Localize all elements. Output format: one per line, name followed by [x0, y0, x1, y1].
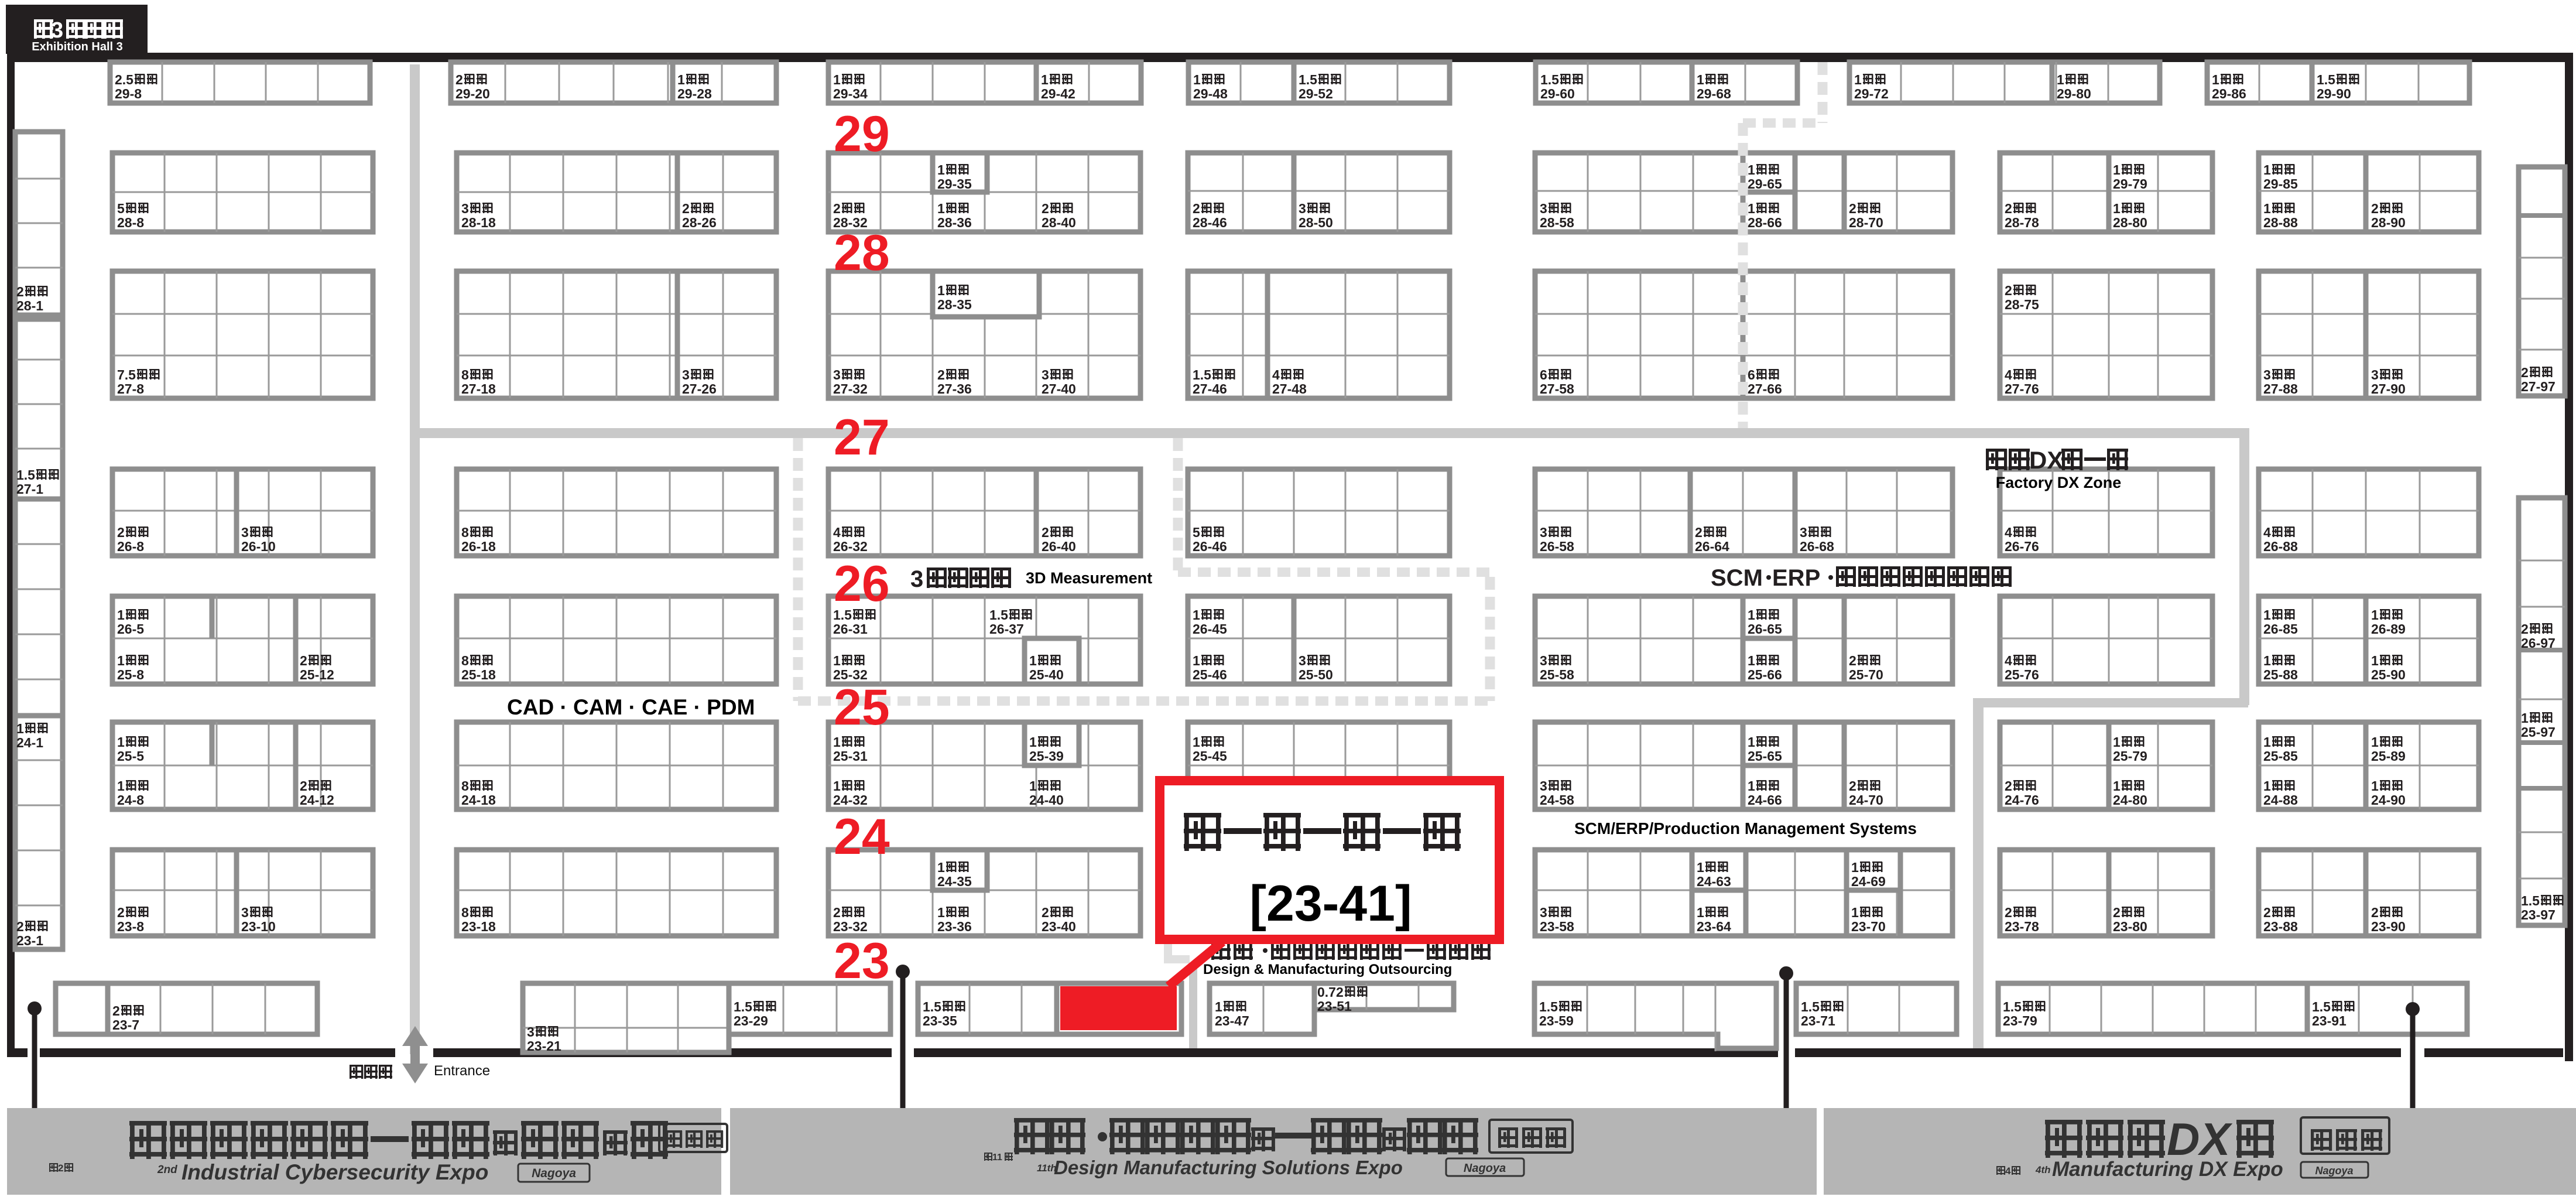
svg-text:2: 2 [1042, 905, 1049, 920]
svg-text:26-10: 26-10 [241, 539, 276, 554]
svg-text:1: 1 [117, 778, 125, 794]
svg-text:1: 1 [2371, 734, 2379, 750]
svg-text:1: 1 [1854, 72, 1862, 87]
svg-text:2: 2 [1849, 778, 1856, 794]
svg-text:1: 1 [833, 72, 841, 87]
svg-text:2: 2 [16, 284, 24, 299]
svg-text:1: 1 [937, 162, 945, 177]
svg-text:29-52: 29-52 [1299, 86, 1333, 101]
svg-text:2: 2 [117, 905, 125, 920]
svg-text:1: 1 [1748, 778, 1755, 794]
svg-text:26-88: 26-88 [2263, 539, 2298, 554]
svg-text:ERP: ERP [1772, 565, 1820, 591]
svg-text:1: 1 [1029, 778, 1037, 794]
svg-text:4: 4 [2263, 525, 2271, 540]
svg-text:25-88: 25-88 [2263, 667, 2298, 682]
svg-text:3: 3 [2263, 367, 2271, 382]
svg-text:Nagoya: Nagoya [2315, 1165, 2353, 1177]
svg-text:2: 2 [833, 201, 841, 216]
svg-text:1: 1 [2263, 778, 2271, 794]
svg-text:Factory DX Zone: Factory DX Zone [1996, 474, 2122, 491]
svg-text:1.5: 1.5 [2003, 999, 2022, 1014]
svg-text:29-8: 29-8 [115, 86, 142, 101]
svg-text:3: 3 [2371, 367, 2379, 382]
svg-text:23-47: 23-47 [1215, 1013, 1249, 1028]
svg-text:25-5: 25-5 [117, 748, 144, 764]
svg-text:26-58: 26-58 [1540, 539, 1574, 554]
svg-text:23-71: 23-71 [1801, 1013, 1835, 1028]
svg-text:2: 2 [1849, 201, 1856, 216]
svg-text:24-35: 24-35 [937, 874, 972, 889]
svg-text:1: 1 [1193, 734, 1200, 750]
svg-text:28-66: 28-66 [1748, 215, 1782, 230]
svg-text:25-66: 25-66 [1748, 667, 1782, 682]
svg-text:1: 1 [1748, 734, 1755, 750]
svg-text:1: 1 [2212, 72, 2219, 87]
svg-text:4th: 4th [2035, 1164, 2051, 1175]
svg-text:1: 1 [2371, 778, 2379, 794]
svg-text:29-35: 29-35 [937, 176, 972, 192]
svg-text:4: 4 [2005, 653, 2012, 668]
svg-text:3: 3 [1540, 653, 1547, 668]
svg-text:25-97: 25-97 [2521, 724, 2556, 740]
svg-text:2: 2 [2113, 905, 2121, 920]
svg-text:1.5: 1.5 [2312, 999, 2331, 1014]
svg-text:1: 1 [2371, 607, 2379, 623]
svg-text:1: 1 [1748, 607, 1755, 623]
svg-text:1: 1 [2113, 162, 2121, 177]
svg-text:25-8: 25-8 [117, 667, 144, 682]
svg-text:2: 2 [300, 653, 307, 668]
svg-text:4: 4 [2005, 367, 2012, 382]
svg-text:27-66: 27-66 [1748, 381, 1782, 396]
svg-text:Design Manufacturing Solutions: Design Manufacturing Solutions Expo [1054, 1157, 1403, 1178]
svg-text:24-69: 24-69 [1851, 874, 1886, 889]
svg-text:4: 4 [1272, 367, 1280, 382]
svg-text:26-31: 26-31 [833, 621, 868, 637]
svg-text:23-59: 23-59 [1539, 1013, 1574, 1028]
svg-text:1: 1 [16, 721, 24, 736]
svg-text:26-68: 26-68 [1800, 539, 1834, 554]
svg-text:3: 3 [241, 525, 249, 540]
svg-text:26-8: 26-8 [117, 539, 144, 554]
svg-text:25-39: 25-39 [1029, 748, 1064, 764]
svg-text:29-28: 29-28 [677, 86, 712, 101]
svg-text:27-8: 27-8 [117, 381, 144, 396]
svg-text:24: 24 [834, 809, 890, 865]
svg-text:23-32: 23-32 [833, 919, 868, 934]
svg-text:1: 1 [1193, 607, 1200, 623]
svg-text:1: 1 [1851, 905, 1859, 920]
svg-text:26: 26 [834, 556, 890, 612]
svg-text:1: 1 [1215, 999, 1222, 1014]
svg-text:27-88: 27-88 [2263, 381, 2298, 396]
svg-text:Exhibition Hall 3: Exhibition Hall 3 [32, 40, 123, 53]
svg-text:1.5: 1.5 [2317, 72, 2335, 87]
svg-text:28-8: 28-8 [117, 215, 144, 230]
svg-text:Entrance: Entrance [434, 1063, 490, 1079]
svg-text:1: 1 [2057, 72, 2064, 87]
svg-text:29: 29 [834, 106, 890, 162]
svg-text:26-32: 26-32 [833, 539, 868, 554]
svg-text:2: 2 [112, 1003, 120, 1018]
svg-text:26-76: 26-76 [2005, 539, 2039, 554]
svg-text:23-88: 23-88 [2263, 919, 2298, 934]
svg-text:29-42: 29-42 [1041, 86, 1075, 101]
svg-text:2: 2 [2005, 283, 2012, 298]
svg-text:1: 1 [117, 607, 125, 623]
svg-text:24-40: 24-40 [1029, 792, 1064, 808]
svg-text:1: 1 [1193, 72, 1201, 87]
svg-text:DX: DX [2029, 446, 2063, 474]
svg-text:23-18: 23-18 [461, 919, 496, 934]
svg-text:3: 3 [1800, 525, 1807, 540]
svg-text:1: 1 [1193, 653, 1200, 668]
svg-text:[23-41]: [23-41] [1249, 876, 1412, 932]
svg-text:SCM/ERP/Production Management: SCM/ERP/Production Management Systems [1574, 819, 1917, 837]
svg-text:28-35: 28-35 [937, 297, 972, 312]
svg-text:28-36: 28-36 [937, 215, 972, 230]
svg-text:26-97: 26-97 [2521, 635, 2556, 651]
svg-text:23-97: 23-97 [2521, 907, 2556, 922]
svg-text:1: 1 [2521, 710, 2529, 726]
svg-text:23-90: 23-90 [2371, 919, 2406, 934]
svg-text:1: 1 [833, 778, 841, 794]
svg-text:23-36: 23-36 [937, 919, 972, 934]
svg-text:27-46: 27-46 [1193, 381, 1227, 396]
svg-text:8: 8 [461, 653, 469, 668]
svg-text:27: 27 [834, 409, 890, 466]
svg-text:2: 2 [1193, 201, 1200, 216]
svg-text:26-45: 26-45 [1193, 621, 1227, 637]
svg-text:23-21: 23-21 [527, 1038, 561, 1054]
svg-text:3: 3 [461, 201, 469, 216]
svg-text:1: 1 [1697, 860, 1704, 875]
svg-text:7.5: 7.5 [117, 367, 136, 382]
svg-text:28-46: 28-46 [1193, 215, 1227, 230]
svg-text:26-37: 26-37 [989, 621, 1024, 637]
svg-text:Nagoya: Nagoya [532, 1167, 576, 1180]
svg-text:23-70: 23-70 [1851, 919, 1886, 934]
svg-text:3: 3 [1540, 201, 1547, 216]
svg-text:28: 28 [834, 225, 890, 281]
svg-text:8: 8 [461, 778, 469, 794]
svg-text:1: 1 [2263, 734, 2271, 750]
svg-text:1: 1 [1748, 162, 1755, 177]
svg-text:24-66: 24-66 [1748, 792, 1782, 808]
svg-text:23-35: 23-35 [923, 1013, 957, 1028]
svg-text:29-86: 29-86 [2212, 86, 2246, 101]
svg-text:28-88: 28-88 [2263, 215, 2298, 230]
svg-text:23: 23 [834, 933, 890, 989]
svg-text:24-32: 24-32 [833, 792, 868, 808]
svg-text:27-76: 27-76 [2005, 381, 2039, 396]
svg-text:1: 1 [1748, 653, 1755, 668]
svg-text:25-85: 25-85 [2263, 748, 2298, 764]
svg-text:26-64: 26-64 [1695, 539, 1729, 554]
svg-text:23-58: 23-58 [1540, 919, 1574, 934]
svg-text:6: 6 [1748, 367, 1755, 382]
svg-text:11: 11 [992, 1153, 1002, 1163]
svg-text:CAD · CAM · CAE · PDM: CAD · CAM · CAE · PDM [507, 695, 755, 719]
svg-text:3D Measurement: 3D Measurement [1026, 569, 1152, 587]
svg-text:1: 1 [677, 72, 685, 87]
svg-text:1.5: 1.5 [1801, 999, 1820, 1014]
svg-text:1: 1 [117, 734, 125, 750]
svg-text:1: 1 [1029, 653, 1037, 668]
svg-text:1: 1 [2263, 607, 2271, 623]
svg-text:1.5: 1.5 [1193, 367, 1211, 382]
svg-text:23-7: 23-7 [112, 1017, 139, 1033]
svg-text:27-58: 27-58 [1540, 381, 1574, 396]
svg-text:2: 2 [2005, 778, 2012, 794]
svg-text:27-1: 27-1 [16, 481, 43, 497]
svg-text:1.5: 1.5 [1539, 999, 1558, 1014]
svg-text:28-40: 28-40 [1042, 215, 1076, 230]
svg-text:27-36: 27-36 [937, 381, 972, 396]
svg-text:23-1: 23-1 [16, 933, 43, 948]
svg-text:1: 1 [117, 653, 125, 668]
svg-text:26-5: 26-5 [117, 621, 144, 637]
svg-text:24-12: 24-12 [300, 792, 334, 808]
svg-text:23-80: 23-80 [2113, 919, 2147, 934]
svg-text:28-70: 28-70 [1849, 215, 1883, 230]
svg-text:23-91: 23-91 [2312, 1013, 2347, 1028]
svg-text:26-18: 26-18 [461, 539, 496, 554]
svg-text:25-79: 25-79 [2113, 748, 2147, 764]
svg-text:1: 1 [2371, 653, 2379, 668]
svg-text:25-31: 25-31 [833, 748, 868, 764]
svg-text:1: 1 [2113, 201, 2121, 216]
svg-text:2: 2 [2005, 905, 2012, 920]
svg-text:1: 1 [1697, 905, 1704, 920]
svg-text:25: 25 [834, 679, 890, 736]
svg-text:23-64: 23-64 [1697, 919, 1731, 934]
svg-text:2: 2 [2521, 621, 2529, 637]
svg-text:24-90: 24-90 [2371, 792, 2406, 808]
svg-text:4: 4 [2005, 525, 2012, 540]
svg-text:1: 1 [937, 860, 945, 875]
svg-text:1.5: 1.5 [1299, 72, 1317, 87]
svg-text:26-40: 26-40 [1042, 539, 1076, 554]
svg-text:1: 1 [2263, 201, 2271, 216]
svg-text:2: 2 [1849, 653, 1856, 668]
svg-text:29-20: 29-20 [455, 86, 490, 101]
svg-text:Manufacturing DX Expo: Manufacturing DX Expo [2052, 1158, 2283, 1181]
svg-text:1: 1 [833, 653, 841, 668]
svg-text:26-89: 26-89 [2371, 621, 2406, 637]
svg-text:1: 1 [2263, 162, 2271, 177]
svg-text:1: 1 [1029, 734, 1037, 750]
svg-text:3: 3 [527, 1024, 535, 1040]
svg-text:23-8: 23-8 [117, 919, 144, 934]
svg-text:5: 5 [117, 201, 125, 216]
svg-text:1.5: 1.5 [16, 467, 35, 483]
svg-text:28-80: 28-80 [2113, 215, 2147, 230]
svg-text:Design & Manufacturing Outsour: Design & Manufacturing Outsourcing [1203, 962, 1452, 977]
svg-text:8: 8 [461, 367, 469, 382]
svg-text:2: 2 [16, 919, 24, 934]
svg-text:25-18: 25-18 [461, 667, 496, 682]
svg-text:2: 2 [682, 201, 690, 216]
svg-text:2: 2 [1042, 525, 1049, 540]
svg-text:2: 2 [455, 72, 463, 87]
svg-text:29-90: 29-90 [2317, 86, 2351, 101]
svg-text:23-78: 23-78 [2005, 919, 2039, 934]
svg-text:DX: DX [2167, 1113, 2232, 1165]
svg-text:28-26: 28-26 [682, 215, 717, 230]
svg-text:26-85: 26-85 [2263, 621, 2298, 637]
svg-text:5: 5 [1193, 525, 1200, 540]
svg-text:24-8: 24-8 [117, 792, 144, 808]
svg-text:28-58: 28-58 [1540, 215, 1574, 230]
svg-text:1: 1 [2113, 734, 2121, 750]
svg-text:8: 8 [461, 905, 469, 920]
svg-text:24-76: 24-76 [2005, 792, 2039, 808]
svg-text:2.5: 2.5 [115, 72, 133, 87]
svg-text:2: 2 [2371, 201, 2379, 216]
svg-text:4: 4 [2005, 1165, 2011, 1177]
svg-text:29-72: 29-72 [1854, 86, 1889, 101]
svg-text:2: 2 [2263, 905, 2271, 920]
svg-text:27-26: 27-26 [682, 381, 717, 396]
svg-text:27-32: 27-32 [833, 381, 868, 396]
svg-text:26-46: 26-46 [1193, 539, 1227, 554]
svg-text:2nd: 2nd [157, 1164, 177, 1176]
svg-text:27-40: 27-40 [1042, 381, 1076, 396]
svg-text:25-76: 25-76 [2005, 667, 2039, 682]
svg-text:25-70: 25-70 [1849, 667, 1883, 682]
svg-text:25-50: 25-50 [1299, 667, 1333, 682]
svg-text:24-1: 24-1 [16, 735, 43, 750]
svg-text:4: 4 [833, 525, 841, 540]
svg-text:2: 2 [117, 525, 125, 540]
svg-text:2: 2 [1042, 201, 1049, 216]
svg-text:Industrial Cybersecurity Expo: Industrial Cybersecurity Expo [181, 1160, 488, 1184]
svg-text:24-80: 24-80 [2113, 792, 2147, 808]
svg-text:2: 2 [937, 367, 945, 382]
svg-text:3: 3 [833, 367, 841, 382]
svg-text:24-88: 24-88 [2263, 792, 2298, 808]
svg-text:2: 2 [300, 778, 307, 794]
svg-text:3: 3 [682, 367, 690, 382]
svg-text:1: 1 [1697, 72, 1704, 87]
svg-text:23-51: 23-51 [1317, 999, 1352, 1014]
svg-text:28-50: 28-50 [1299, 215, 1333, 230]
svg-text:27-48: 27-48 [1272, 381, 1307, 396]
svg-text:2: 2 [833, 905, 841, 920]
svg-text:26-65: 26-65 [1748, 621, 1782, 637]
svg-text:1: 1 [937, 283, 945, 298]
svg-text:28-90: 28-90 [2371, 215, 2406, 230]
svg-text:Nagoya: Nagoya [1464, 1162, 1506, 1175]
svg-text:25-45: 25-45 [1193, 748, 1227, 764]
svg-text:29-60: 29-60 [1540, 86, 1575, 101]
svg-text:0.72: 0.72 [1317, 984, 1344, 1000]
svg-text:3: 3 [241, 905, 249, 920]
svg-text:2: 2 [1695, 525, 1703, 540]
svg-text:3: 3 [1299, 653, 1306, 668]
svg-text:25-58: 25-58 [1540, 667, 1574, 682]
svg-text:29-79: 29-79 [2113, 176, 2147, 192]
svg-text:23-79: 23-79 [2003, 1013, 2037, 1028]
svg-text:27-18: 27-18 [461, 381, 496, 396]
svg-text:25-90: 25-90 [2371, 667, 2406, 682]
svg-text:28-1: 28-1 [16, 298, 43, 313]
svg-text:8: 8 [461, 525, 469, 540]
svg-text:2: 2 [58, 1163, 63, 1174]
svg-text:1: 1 [2263, 653, 2271, 668]
svg-text:1: 1 [1851, 860, 1859, 875]
svg-text:2: 2 [2371, 905, 2379, 920]
svg-text:29-34: 29-34 [833, 86, 868, 101]
svg-text:25-40: 25-40 [1029, 667, 1064, 682]
svg-text:1.5: 1.5 [923, 999, 941, 1014]
svg-text:23-29: 23-29 [734, 1013, 768, 1028]
svg-text:1.5: 1.5 [1540, 72, 1559, 87]
svg-text:1.5: 1.5 [989, 607, 1008, 623]
svg-text:27-90: 27-90 [2371, 381, 2406, 396]
svg-text:28-78: 28-78 [2005, 215, 2039, 230]
svg-text:1: 1 [2113, 778, 2121, 794]
svg-text:25-12: 25-12 [300, 667, 334, 682]
svg-text:1.5: 1.5 [734, 999, 752, 1014]
svg-text:1: 1 [833, 734, 841, 750]
svg-text:25-65: 25-65 [1748, 748, 1782, 764]
svg-text:1: 1 [1041, 72, 1049, 87]
svg-text:1: 1 [1748, 201, 1755, 216]
svg-text:29-85: 29-85 [2263, 176, 2298, 192]
svg-text:24-18: 24-18 [461, 792, 496, 808]
svg-text:3: 3 [1540, 905, 1547, 920]
svg-text:25-89: 25-89 [2371, 748, 2406, 764]
svg-text:3: 3 [51, 18, 63, 43]
svg-text:29-68: 29-68 [1697, 86, 1731, 101]
svg-text:29-80: 29-80 [2057, 86, 2091, 101]
svg-text:3: 3 [1042, 367, 1049, 382]
svg-text:2: 2 [2521, 365, 2529, 380]
svg-text:24-63: 24-63 [1697, 874, 1731, 889]
svg-text:1.5: 1.5 [2521, 893, 2540, 908]
svg-text:SCM: SCM [1711, 565, 1763, 591]
svg-text:24-70: 24-70 [1849, 792, 1883, 808]
svg-text:1: 1 [937, 905, 945, 920]
svg-text:29-65: 29-65 [1748, 176, 1782, 192]
svg-text:1: 1 [937, 201, 945, 216]
svg-text:23-40: 23-40 [1042, 919, 1076, 934]
svg-text:6: 6 [1540, 367, 1547, 382]
svg-text:3: 3 [1540, 525, 1547, 540]
svg-text:3: 3 [1299, 201, 1306, 216]
svg-text:28-18: 28-18 [461, 215, 496, 230]
svg-text:3: 3 [1540, 778, 1547, 794]
svg-text:25-46: 25-46 [1193, 667, 1227, 682]
svg-text:23-10: 23-10 [241, 919, 276, 934]
svg-text:28-75: 28-75 [2005, 297, 2039, 312]
svg-text:24-58: 24-58 [1540, 792, 1574, 808]
svg-text:29-48: 29-48 [1193, 86, 1228, 101]
svg-text:27-97: 27-97 [2521, 379, 2556, 394]
svg-text:3: 3 [910, 566, 923, 592]
svg-text:2: 2 [2005, 201, 2012, 216]
